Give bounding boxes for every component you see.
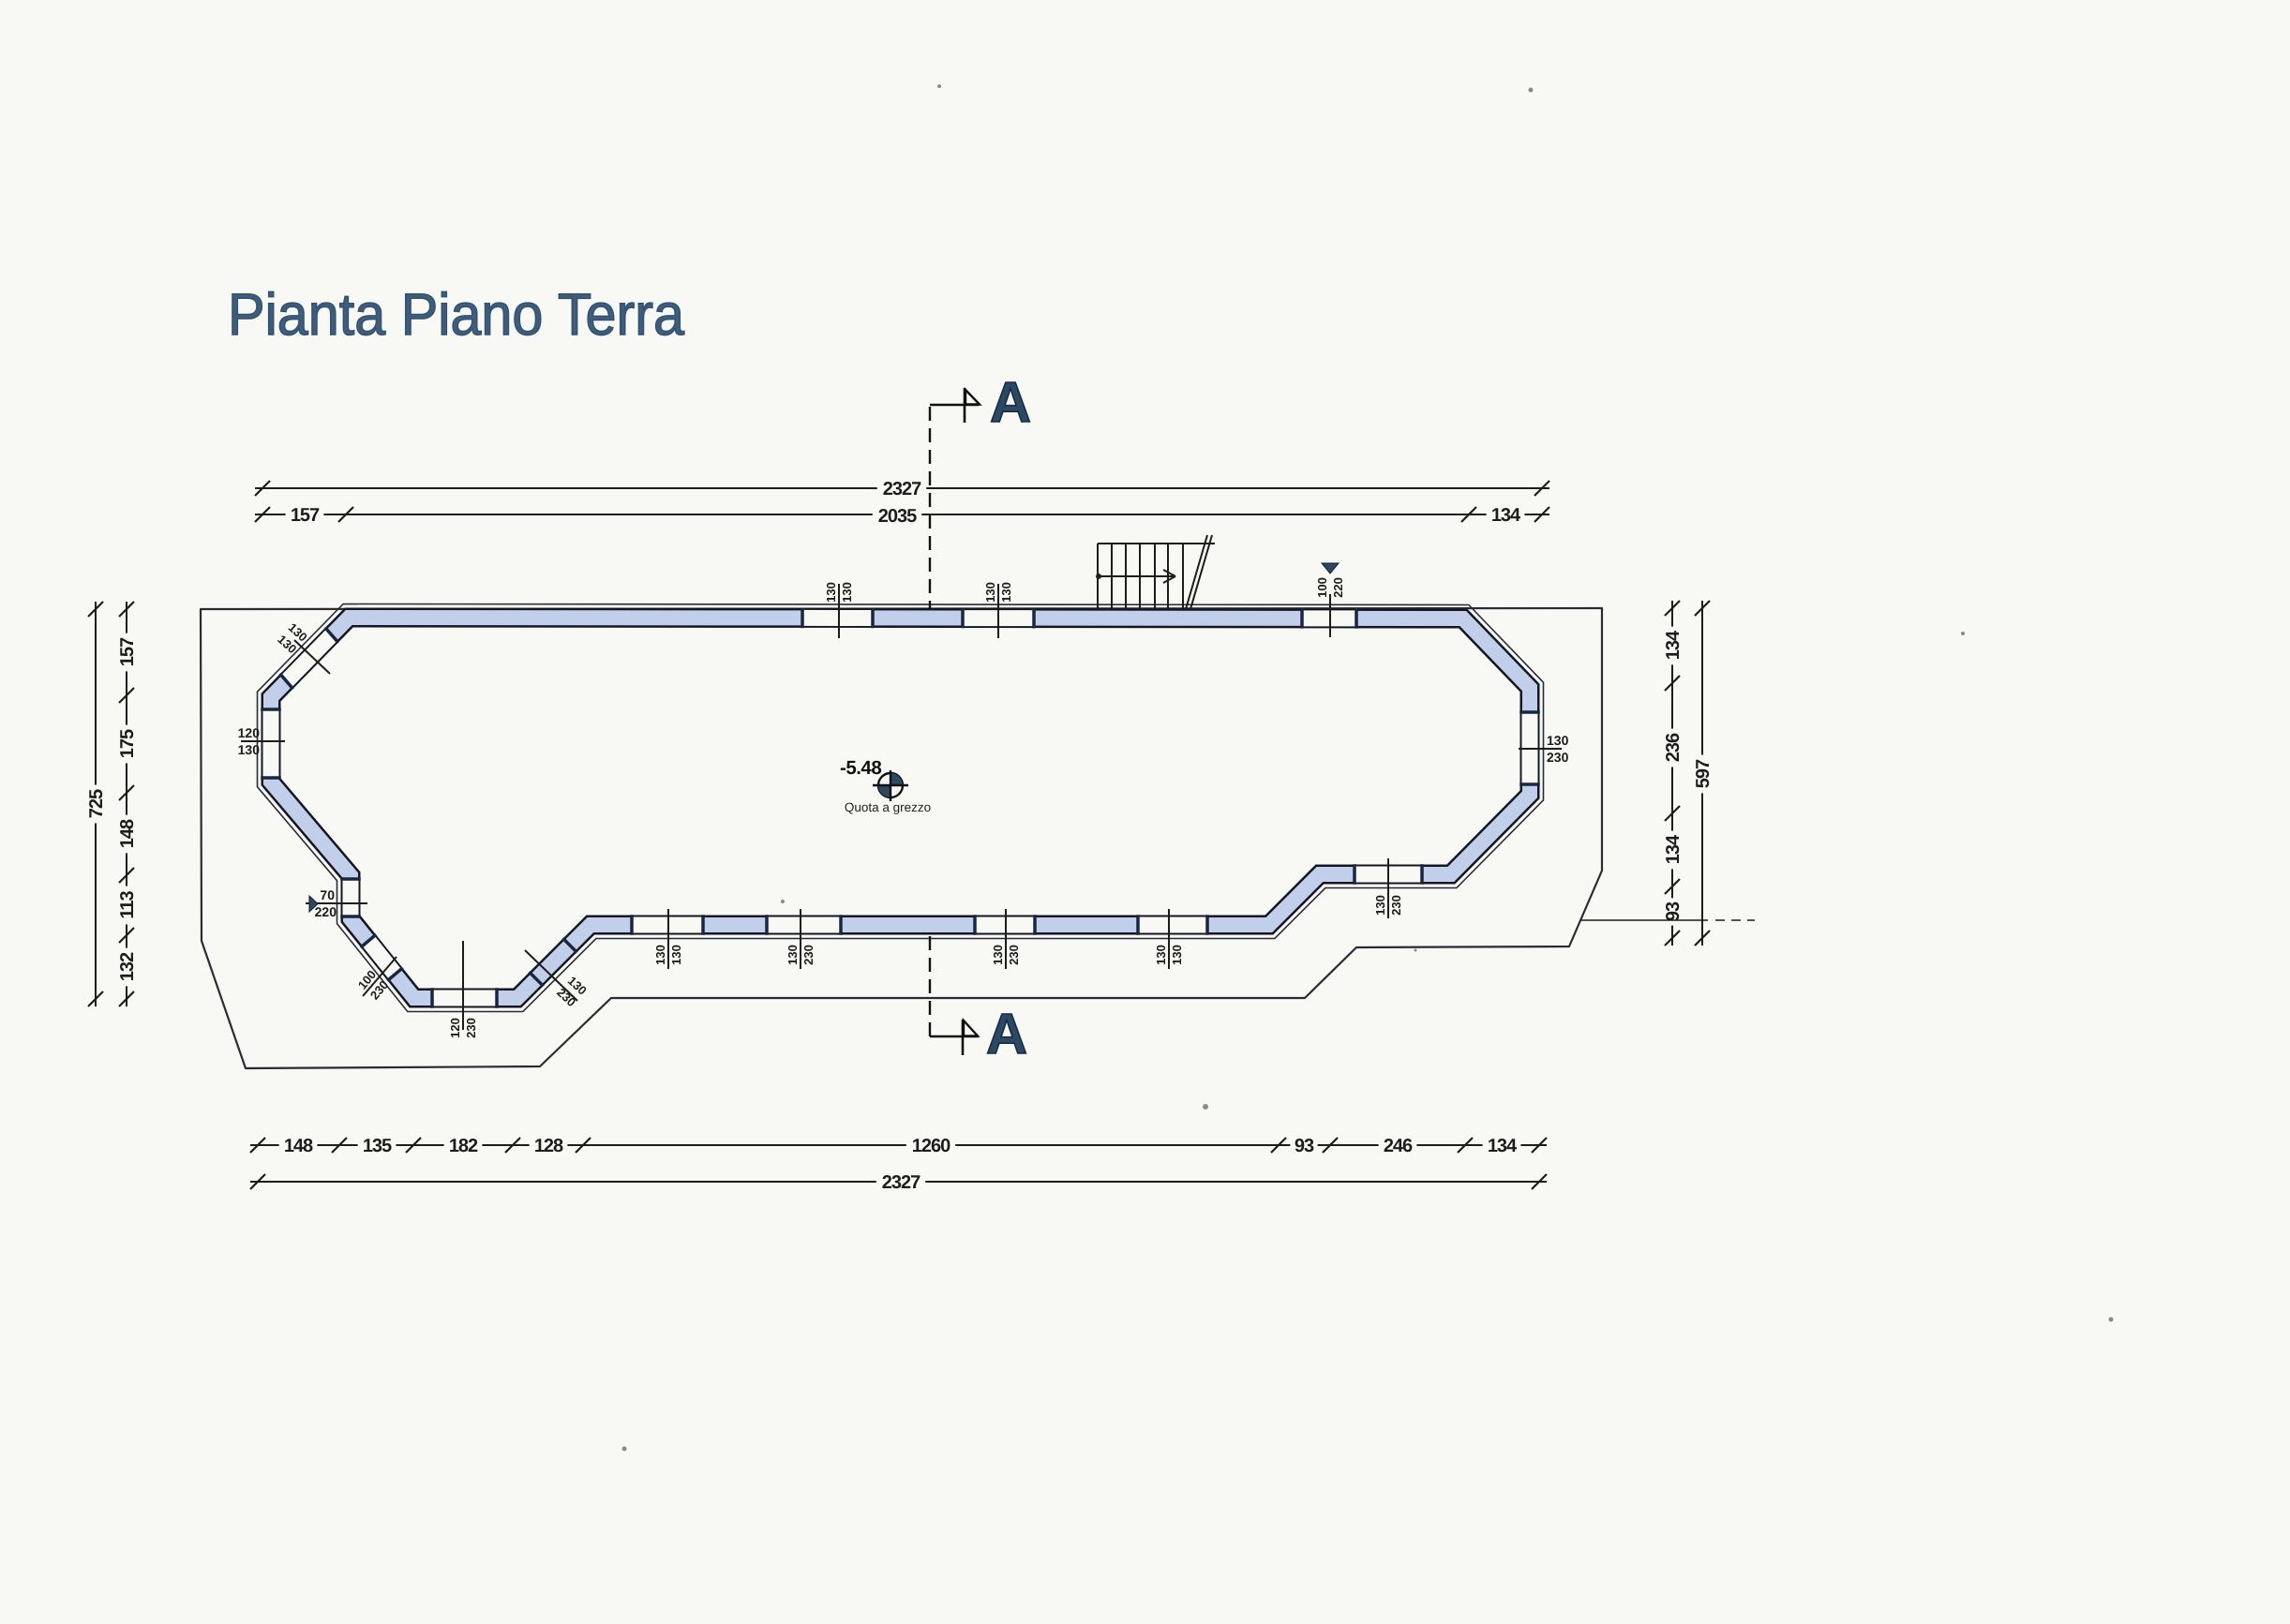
svg-text:130: 130 xyxy=(669,945,683,965)
svg-text:725: 725 xyxy=(86,789,107,818)
svg-text:182: 182 xyxy=(449,1136,478,1156)
svg-text:120: 120 xyxy=(448,1018,462,1038)
svg-text:220: 220 xyxy=(315,904,337,919)
svg-text:130: 130 xyxy=(840,582,854,603)
svg-text:148: 148 xyxy=(284,1136,313,1156)
svg-text:130: 130 xyxy=(786,945,800,965)
svg-text:134: 134 xyxy=(1488,1136,1518,1156)
svg-text:2327: 2327 xyxy=(882,1172,920,1193)
svg-text:130: 130 xyxy=(1547,733,1569,748)
svg-text:93: 93 xyxy=(1295,1136,1314,1156)
svg-text:134: 134 xyxy=(1491,505,1521,526)
svg-text:230: 230 xyxy=(1547,750,1569,765)
svg-text:A: A xyxy=(990,370,1031,434)
svg-text:113: 113 xyxy=(117,890,138,918)
svg-text:230: 230 xyxy=(1007,945,1021,965)
svg-text:220: 220 xyxy=(1331,577,1345,598)
svg-text:157: 157 xyxy=(291,505,320,526)
svg-text:134: 134 xyxy=(1663,834,1684,864)
svg-text:93: 93 xyxy=(1663,901,1684,921)
svg-text:157: 157 xyxy=(117,637,138,666)
svg-text:1260: 1260 xyxy=(912,1136,950,1156)
svg-text:100: 100 xyxy=(1315,577,1329,598)
svg-text:130: 130 xyxy=(238,742,261,757)
svg-text:Pianta Piano Terra: Pianta Piano Terra xyxy=(228,282,685,348)
svg-text:-5.48: -5.48 xyxy=(840,757,881,779)
svg-text:230: 230 xyxy=(1389,895,1403,916)
svg-text:2035: 2035 xyxy=(878,506,917,527)
svg-text:120: 120 xyxy=(238,725,261,740)
svg-text:70: 70 xyxy=(320,887,335,902)
svg-text:130: 130 xyxy=(824,582,838,603)
svg-text:230: 230 xyxy=(801,945,816,965)
svg-text:246: 246 xyxy=(1384,1136,1413,1156)
svg-text:130: 130 xyxy=(1154,945,1168,965)
svg-text:148: 148 xyxy=(117,819,138,848)
svg-text:130: 130 xyxy=(1373,895,1387,916)
svg-text:130: 130 xyxy=(999,582,1013,603)
svg-text:130: 130 xyxy=(653,945,667,965)
svg-text:Quota a grezzo: Quota a grezzo xyxy=(845,800,931,814)
svg-text:597: 597 xyxy=(1693,759,1714,788)
svg-text:128: 128 xyxy=(534,1136,563,1156)
svg-text:132: 132 xyxy=(117,952,138,981)
svg-text:2327: 2327 xyxy=(883,479,921,499)
svg-text:236: 236 xyxy=(1663,733,1684,762)
svg-text:130: 130 xyxy=(1170,945,1184,965)
svg-text:A: A xyxy=(986,1002,1027,1065)
svg-text:175: 175 xyxy=(117,729,138,758)
svg-text:130: 130 xyxy=(983,582,997,603)
svg-text:135: 135 xyxy=(363,1136,392,1156)
svg-text:130: 130 xyxy=(991,945,1005,965)
svg-text:230: 230 xyxy=(464,1018,478,1038)
svg-text:134: 134 xyxy=(1663,630,1684,660)
